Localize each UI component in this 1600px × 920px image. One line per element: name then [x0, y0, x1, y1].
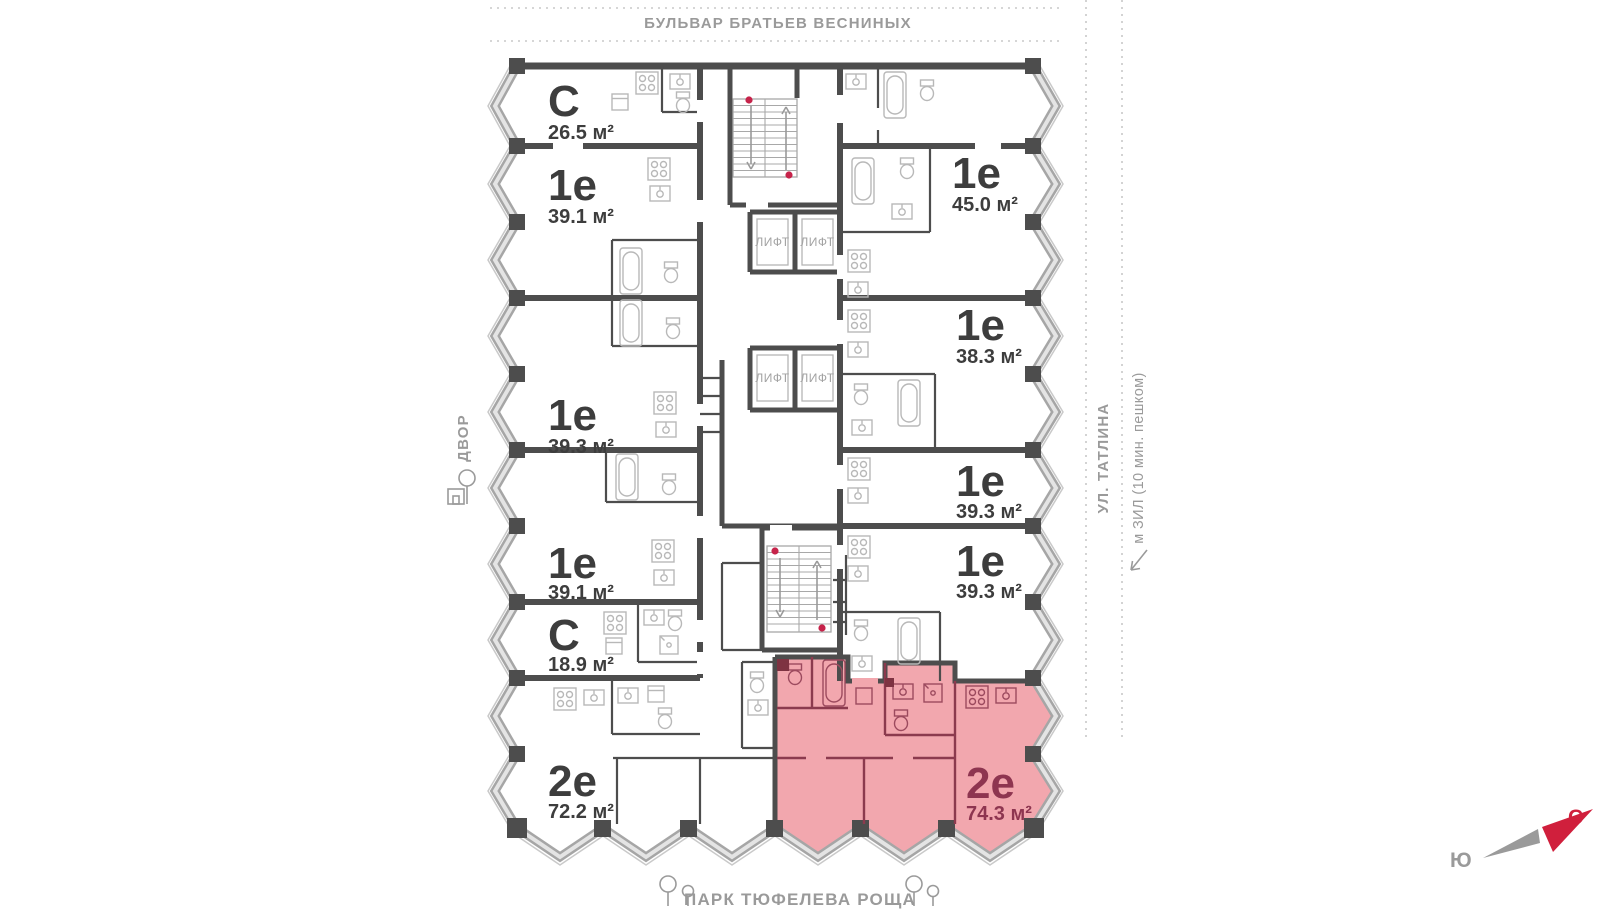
svg-text:2е[interactable]: 2е	[966, 759, 1015, 808]
elevator-label: ЛИФТ	[800, 371, 834, 385]
apartment-c-26-5[interactable]: С 26.5 м²	[548, 77, 614, 144]
svg-text:38.3 м²[interactable]: 38.3 м²	[956, 346, 1022, 368]
svg-text:1е[interactable]: 1е	[956, 301, 1005, 350]
svg-text:1е[interactable]: 1е	[548, 161, 597, 210]
svg-text:39.3 м²[interactable]: 39.3 м²	[548, 436, 614, 458]
compass-south-label: Ю	[1450, 849, 1472, 872]
svg-text:72.2 м²[interactable]: 72.2 м²	[548, 801, 614, 823]
svg-text:39.1 м²[interactable]: 39.1 м²	[548, 582, 614, 604]
apartment-1e-39-3-right-lower[interactable]: 1е 39.3 м²	[956, 537, 1022, 603]
boulevard-label: БУЛЬВАР БРАТЬЕВ ВЕСНИНЫХ	[644, 15, 912, 32]
apartment-2e-72-2[interactable]: 2е 72.2 м²	[548, 757, 614, 823]
compass: Ю С	[1450, 806, 1593, 872]
park-label: ПАРК ТЮФЕЛЕВА РОЩА	[684, 890, 916, 909]
metro-arrow-icon	[1131, 550, 1147, 570]
selected-apartment-region[interactable]	[775, 657, 1054, 856]
svg-text:26.5 м²[interactable]: 26.5 м²	[548, 122, 614, 144]
staircase-bottom	[767, 546, 846, 635]
floor-plan-page: БУЛЬВАР БРАТЬЕВ ВЕСНИНЫХ УЛ. ТАТЛИНА м З…	[0, 0, 1600, 920]
apartment-1e-38-3[interactable]: 1е 38.3 м²	[956, 301, 1022, 368]
metro-label: м ЗИЛ (10 мин. пешком)	[1131, 372, 1147, 544]
right-apartments-interior	[840, 66, 940, 681]
elevator-label: ЛИФТ	[755, 371, 789, 385]
svg-text:1е[interactable]: 1е	[548, 391, 597, 440]
svg-text:39.1 м²[interactable]: 39.1 м²	[548, 206, 614, 228]
elevator-label: ЛИФТ	[800, 235, 834, 249]
svg-text:18.9 м²[interactable]: 18.9 м²	[548, 654, 614, 676]
svg-text:39.3 м²[interactable]: 39.3 м²	[956, 501, 1022, 523]
staircase-top	[733, 96, 797, 178]
courtyard-icon	[448, 470, 475, 504]
compass-north-label: С	[1568, 806, 1583, 829]
svg-text:1е[interactable]: 1е	[956, 537, 1005, 586]
svg-text:45.0 м²[interactable]: 45.0 м²	[952, 194, 1018, 216]
svg-text:2е[interactable]: 2е	[548, 757, 597, 806]
utility-shelves	[700, 378, 722, 432]
svg-text:1е[interactable]: 1е	[956, 457, 1005, 506]
apartment-1e-39-3-right-upper[interactable]: 1е 39.3 м²	[956, 457, 1022, 523]
svg-text:74.3 м²[interactable]: 74.3 м²	[966, 803, 1032, 825]
apartment-1e-39-1-upper[interactable]: 1е 39.1 м²	[548, 161, 614, 228]
compass-south-needle	[1483, 829, 1540, 858]
svg-text:С[interactable]: С	[548, 77, 580, 126]
svg-text:1е[interactable]: 1е	[548, 539, 597, 588]
elevator-label: ЛИФТ	[755, 235, 789, 249]
courtyard-label: ДВОР	[455, 414, 472, 462]
street-right-label: УЛ. ТАТЛИНА	[1095, 403, 1112, 514]
apartment-1e-45-0[interactable]: 1е 45.0 м²	[952, 149, 1018, 216]
svg-text:С[interactable]: С	[548, 611, 580, 660]
svg-text:1е[interactable]: 1е	[952, 149, 1001, 198]
apartment-1e-39-1-lower[interactable]: 1е 39.1 м²	[548, 539, 614, 604]
floor-plan-canvas: БУЛЬВАР БРАТЬЕВ ВЕСНИНЫХ УЛ. ТАТЛИНА м З…	[0, 0, 1600, 920]
apartment-1e-39-3-left[interactable]: 1е 39.3 м²	[548, 391, 614, 458]
svg-text:39.3 м²[interactable]: 39.3 м²	[956, 581, 1022, 603]
